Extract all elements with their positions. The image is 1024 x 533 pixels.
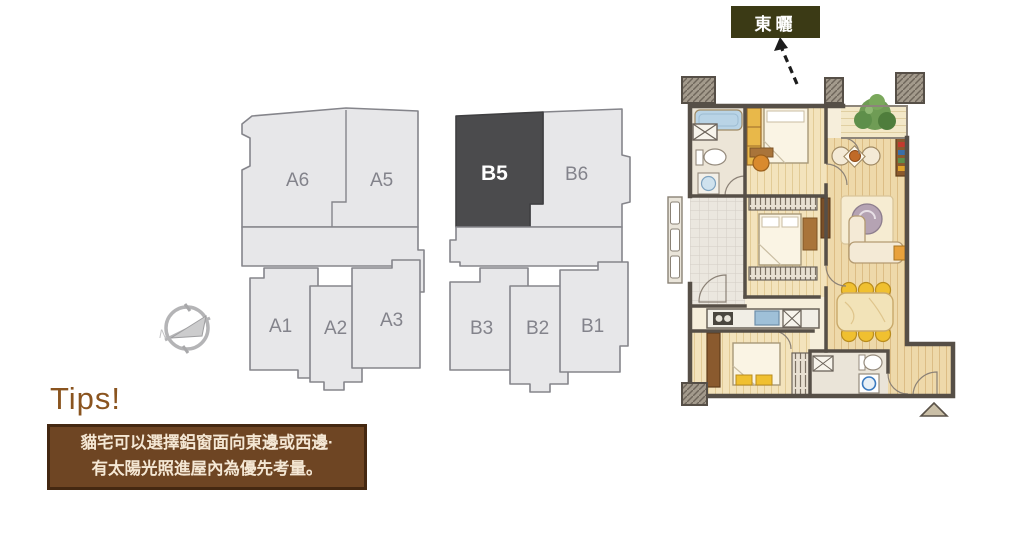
closet-rail-bottom (749, 267, 817, 280)
toilet (704, 149, 726, 165)
unit-label-a2: A2 (324, 318, 347, 339)
tips-box: 貓宅可以選擇鋁窗面向東邊或西邊· 有太陽光照進屋內為優先考量。 (47, 424, 367, 490)
unit-label-a3: A3 (380, 310, 403, 331)
plant (854, 94, 896, 130)
sun-pointer-arrow (768, 37, 808, 89)
entry-arrow-marker (921, 403, 947, 416)
closet-rail-top (749, 197, 817, 210)
tips-heading: Tips! (50, 381, 121, 417)
toilet2 (864, 355, 882, 370)
tips-line-2: 有太陽光照進屋內為優先考量。 (50, 457, 364, 483)
bedroom1-furniture (747, 108, 808, 171)
building-b-corridor (450, 227, 622, 266)
building-a-top-block (242, 108, 418, 227)
entry-hall-floor (690, 196, 745, 304)
ottoman (894, 246, 905, 260)
apartment-floorplan (663, 66, 968, 428)
kitchen-sink (755, 311, 779, 325)
unit-label-b6: B6 (565, 164, 588, 185)
sun-exposure-callout: 東曬 (731, 6, 820, 38)
ac-unit (671, 229, 680, 251)
wardrobe3 (707, 333, 720, 387)
cushion (756, 375, 772, 385)
keyplan-building-a: A6 A5 A1 A2 A3 (234, 98, 429, 398)
chair1 (753, 155, 769, 171)
unit-label-b3: B3 (470, 318, 493, 339)
unit-label-a1: A1 (269, 316, 292, 337)
dining-table (837, 293, 893, 331)
ac-unit (671, 256, 680, 278)
slide: N A6 A5 A1 A2 A3 B5 B6 B3 B2 B1 (0, 0, 1024, 533)
unit-label-a6: A6 (286, 170, 309, 191)
unit-label-b5: B5 (481, 162, 508, 185)
unit-label-b2: B2 (526, 318, 549, 339)
keyplan-building-b: B5 B6 B3 B2 B1 (448, 98, 638, 398)
bedroom2-furniture (749, 197, 817, 280)
tips-line-1: 貓宅可以選擇鋁窗面向東邊或西邊· (50, 431, 364, 457)
desk2 (803, 218, 817, 250)
sun-exposure-label: 東曬 (755, 10, 797, 35)
unit-label-b1: B1 (581, 316, 604, 337)
cushion (736, 375, 752, 385)
unit-label-a5: A5 (370, 170, 393, 191)
compass-icon: N (158, 301, 214, 355)
closet3 (792, 353, 810, 396)
ac-unit (671, 202, 680, 224)
kitchen (707, 309, 819, 328)
